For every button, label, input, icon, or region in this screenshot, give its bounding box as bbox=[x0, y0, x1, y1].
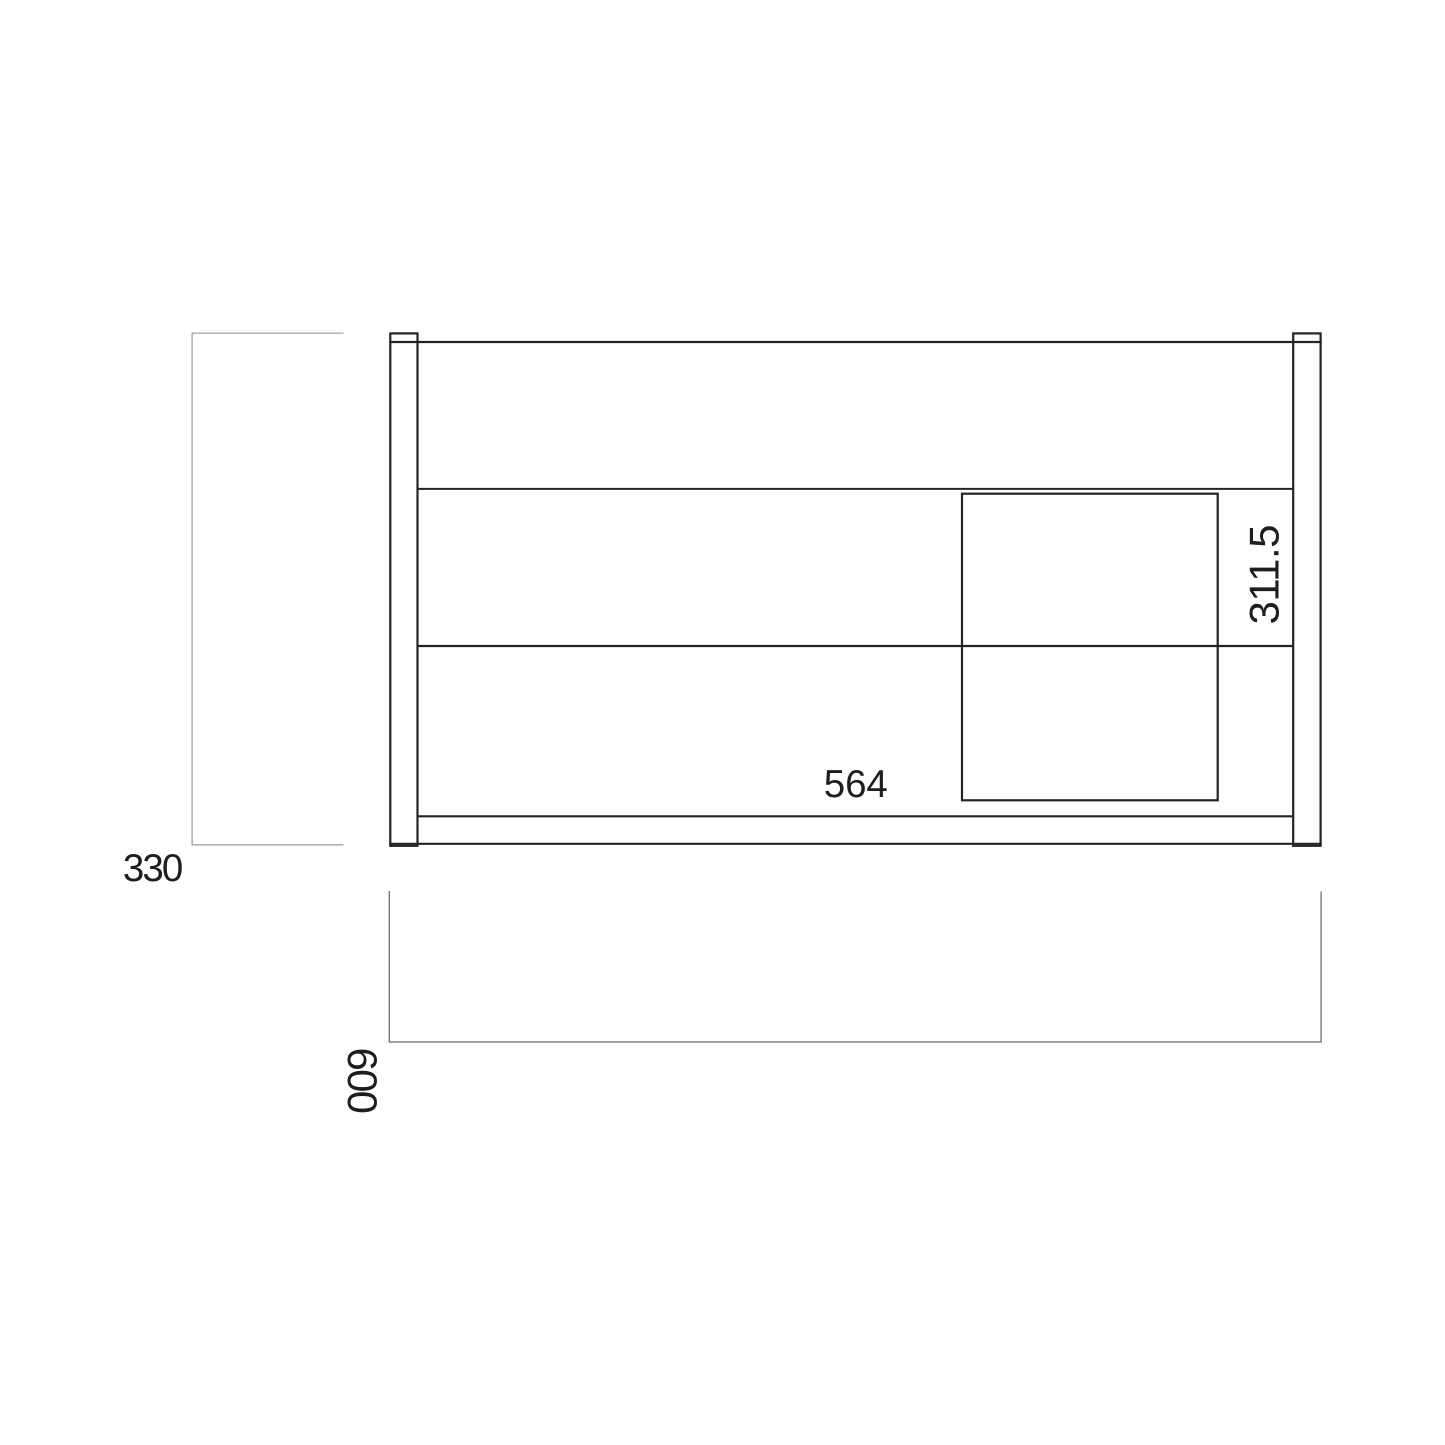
svg-text:330: 330 bbox=[123, 847, 184, 890]
svg-text:600: 600 bbox=[339, 1048, 386, 1115]
svg-text:564: 564 bbox=[824, 763, 888, 806]
svg-text:311.5: 311.5 bbox=[1241, 525, 1288, 625]
